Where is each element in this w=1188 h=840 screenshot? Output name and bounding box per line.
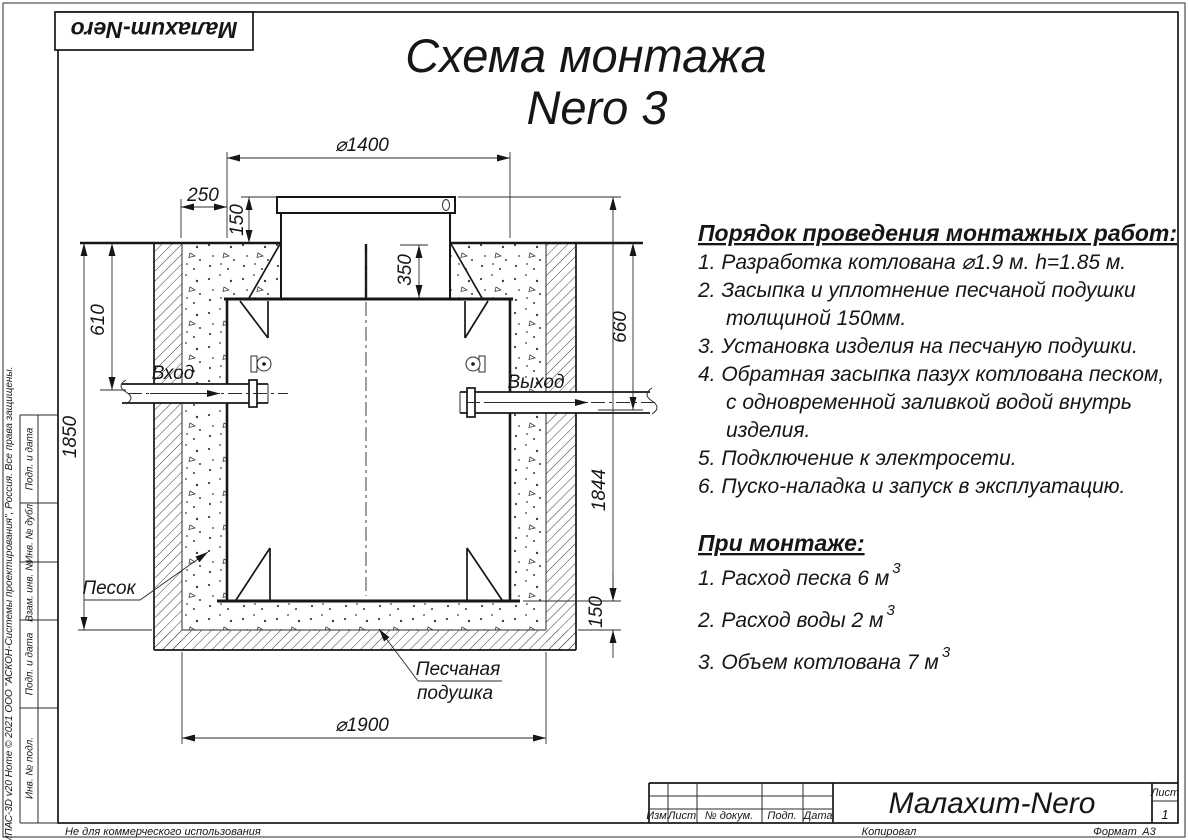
titleblock-sheet-label: Лист (1150, 787, 1179, 799)
page-title-line2: Nero 3 (526, 81, 667, 134)
instruction-line: 3. Установка изделия на песчаную подушки… (698, 335, 1138, 358)
cable-gland-right (466, 356, 485, 372)
note-superscript: 3 (886, 602, 895, 619)
page-title-line1: Схема монтажа (405, 29, 766, 82)
title-block: Изм. Лист № докум. Подп. Дата Малахит-Ne… (646, 783, 1179, 823)
dim-250-label: 250 (186, 185, 219, 206)
copied-by-label: Копировал (862, 826, 917, 838)
cushion-label-line2: подушка (417, 683, 493, 704)
below-frame-annotations: Не для коммерческого использования Копир… (65, 826, 1157, 838)
note-text: 1. Расход песка 6 м (698, 567, 889, 590)
note-superscript: 3 (942, 644, 951, 661)
installation-diagram: Вход Выход (60, 135, 658, 744)
tank-cover (277, 197, 455, 213)
note-text: 2. Расход воды 2 м (697, 609, 883, 632)
montage-note: 2. Расход воды 2 м3 (697, 602, 895, 632)
instruction-line: 5. Подключение к электросети. (698, 447, 1017, 470)
montage-note: 3. Объем котлована 7 м3 (698, 644, 951, 674)
note-superscript: 3 (892, 560, 901, 577)
dim-610-label: 610 (88, 304, 109, 336)
cover-vent (443, 200, 450, 211)
left-frame-stamps: КОМПАС-3D v20 Home © 2021 ООО "АСКОН-Сис… (4, 366, 58, 840)
cable-gland-left (251, 356, 271, 372)
outlet-label: Выход (507, 372, 564, 393)
montage-subheading: При монтаже: (698, 530, 865, 556)
instruction-line: толщиной 150мм. (726, 307, 906, 330)
cushion-label-line1: Песчаная (416, 659, 501, 680)
titleblock-col-podp: Подп. (767, 810, 796, 822)
dim-1844-label: 1844 (589, 469, 610, 511)
stamp-cell-label: Инв. № подл. (25, 737, 36, 799)
not-commercial-note: Не для коммерческого использования (65, 826, 261, 838)
instructions-block: Порядок проведения монтажных работ: 1. Р… (697, 220, 1177, 674)
sand-backfill (182, 243, 546, 630)
stamp-cell-label: Подп. и дата (25, 427, 36, 490)
instruction-line: 6. Пуско-наладка и запуск в эксплуатацию… (698, 475, 1125, 498)
dim-1400-label: ⌀1400 (335, 135, 389, 156)
dim-150-top-label: 150 (227, 204, 248, 236)
format-value: А3 (1141, 826, 1156, 838)
sand-label: Песок (82, 578, 136, 599)
titleblock-col-docnum: № докум. (705, 810, 753, 822)
logo-block: Малахит-Nero (55, 12, 253, 50)
stamp-cell-label: Подп. и дата (25, 632, 36, 695)
stamp-cell-label: Инв. № дубл. (24, 501, 36, 563)
instruction-line: 2. Засыпка и уплотнение песчаной подушки (697, 279, 1136, 302)
instruction-line: изделия. (726, 419, 810, 442)
instruction-line: с одновременной заливкой водой внутрь (726, 391, 1132, 414)
engineering-drawing-sheet: Малахит-Nero Схема монтажа Nero 3 (0, 0, 1188, 840)
dim-150-bottom-label: 150 (586, 596, 607, 628)
dim-1900-label: ⌀1900 (335, 715, 389, 736)
titleblock-col-list: Лист (667, 810, 696, 822)
titleblock-col-izm: Изм. (646, 810, 669, 822)
logo-text: Малахит-Nero (71, 17, 238, 43)
stamp-cell-label: Взам. инв. № (25, 560, 36, 622)
hatch-bottom-band (154, 630, 576, 650)
titleblock-col-data: Дата (801, 810, 832, 822)
dim-1850-label: 1850 (60, 415, 81, 458)
instructions-heading: Порядок проведения монтажных работ: (698, 220, 1177, 246)
instruction-line: 1. Разработка котлована ⌀1.9 м. h=1.85 м… (698, 251, 1126, 274)
dim-350-label: 350 (395, 254, 416, 286)
montage-note: 1. Расход песка 6 м3 (698, 560, 901, 590)
inlet-label: Вход (152, 363, 194, 384)
instruction-line: 4. Обратная засыпка пазух котлована песк… (698, 363, 1164, 386)
hatch-left-band (154, 243, 182, 650)
hatch-right-band (546, 243, 576, 650)
titleblock-company: Малахит-Nero (889, 787, 1096, 820)
kompas-credit: КОМПАС-3D v20 Home © 2021 ООО "АСКОН-Сис… (4, 366, 15, 840)
format-label: Формат (1093, 826, 1137, 838)
drawing-canvas: Малахит-Nero Схема монтажа Nero 3 (0, 0, 1188, 840)
note-text: 3. Объем котлована 7 м (698, 651, 939, 674)
titleblock-sheet-number: 1 (1161, 807, 1168, 822)
